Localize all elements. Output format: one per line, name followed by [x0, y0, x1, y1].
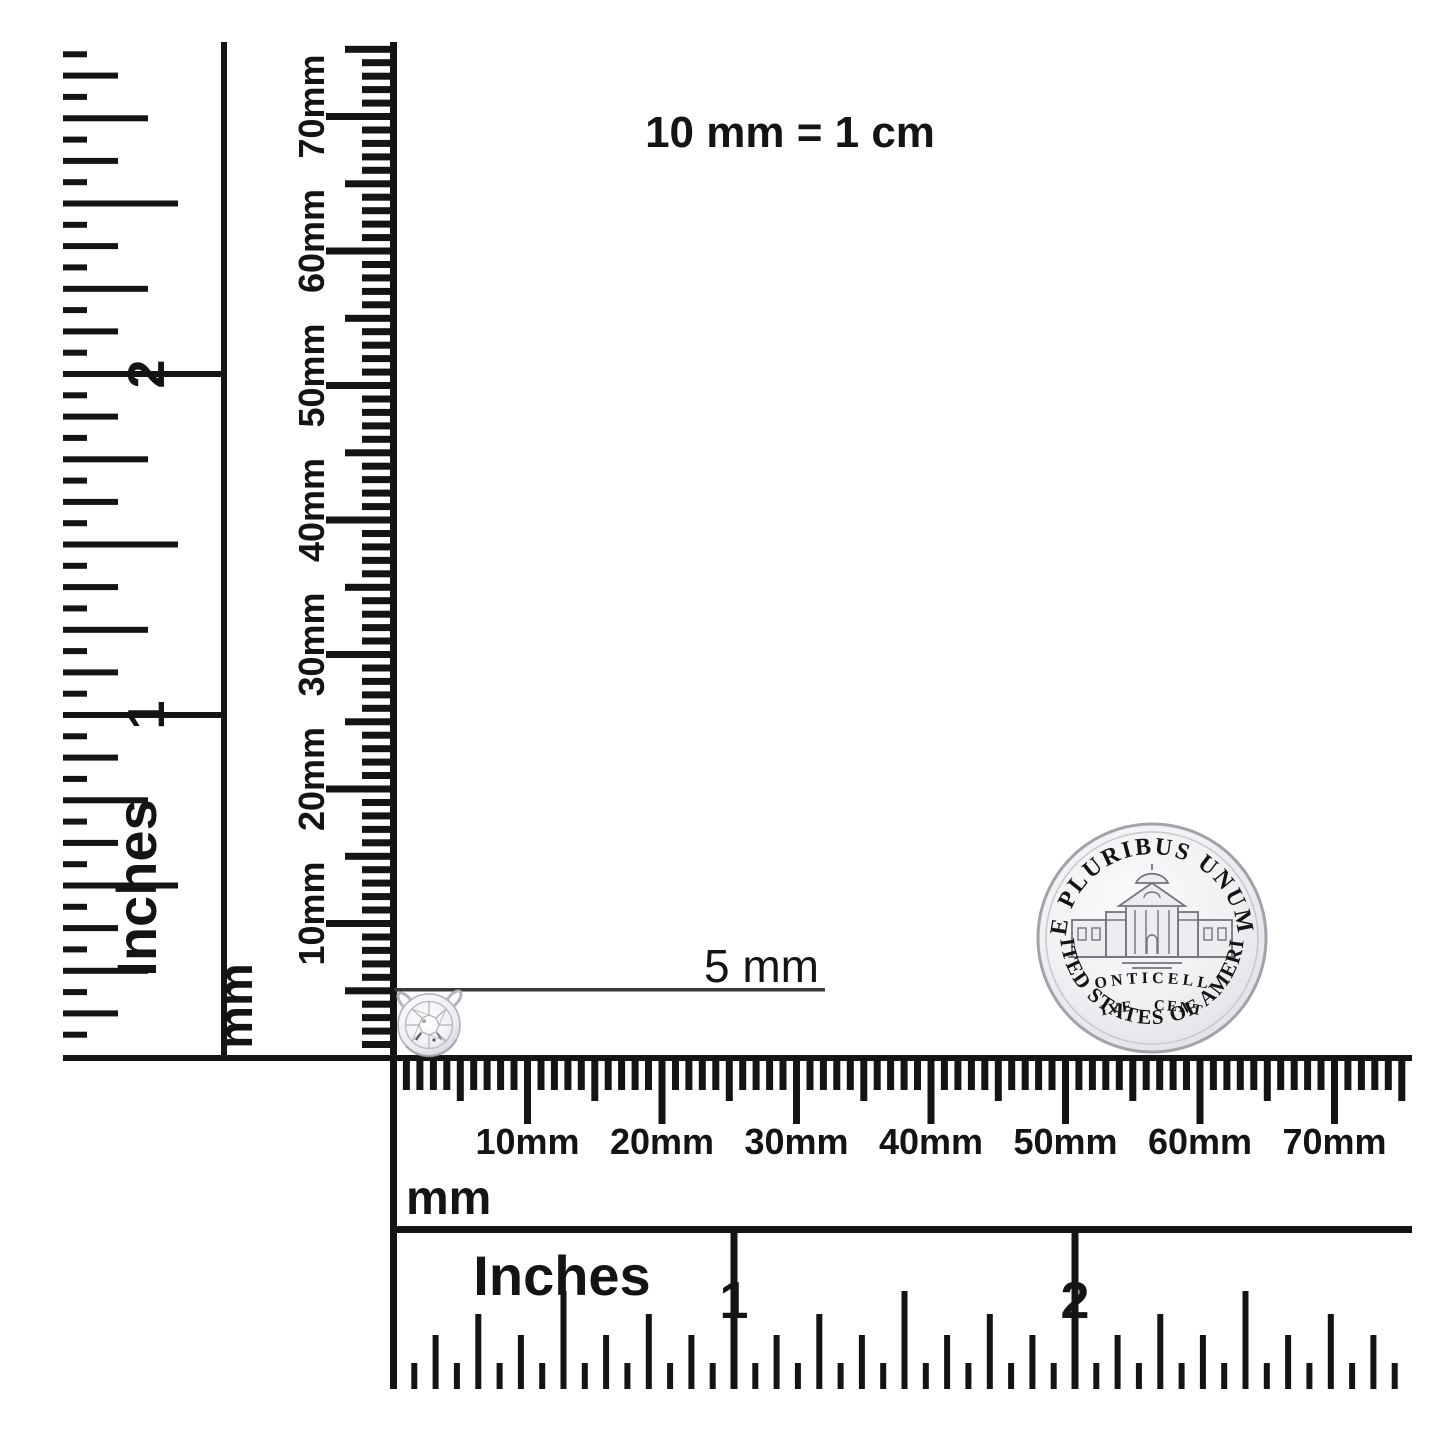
tick	[362, 732, 392, 739]
tick	[1008, 1056, 1015, 1090]
mm-ruler-horizontal-unit-label: mm	[406, 1172, 491, 1225]
tick	[433, 1335, 439, 1389]
tick	[887, 1056, 894, 1090]
tick	[816, 1314, 822, 1389]
tick	[1183, 1056, 1190, 1090]
tick	[582, 1363, 588, 1389]
tick	[538, 1056, 545, 1090]
tick	[63, 542, 178, 548]
building-right-link	[1178, 912, 1198, 957]
tick	[1062, 1056, 1069, 1124]
tick	[362, 100, 392, 107]
tick	[914, 1056, 921, 1090]
tick	[923, 1363, 929, 1389]
tick	[63, 1032, 87, 1038]
tick	[1089, 1056, 1096, 1090]
tick	[63, 414, 118, 420]
tick	[362, 369, 392, 376]
tick	[712, 1056, 719, 1090]
mm-number: 60mm	[291, 189, 332, 293]
tick	[63, 733, 87, 739]
tick	[1008, 1363, 1014, 1389]
tick	[1291, 1056, 1298, 1090]
horizontal-baseline	[63, 1055, 1412, 1061]
tick	[954, 1056, 961, 1090]
tick	[618, 1056, 625, 1090]
tick	[63, 73, 118, 79]
mm-inch-separator-line	[390, 1226, 1412, 1233]
tick	[710, 1363, 716, 1389]
tick	[470, 1056, 477, 1090]
tick	[1143, 1056, 1150, 1090]
tick	[475, 1314, 481, 1389]
tick	[63, 776, 87, 782]
tick	[362, 772, 392, 779]
inch-ruler-vertical-unit-label: Inches	[105, 799, 168, 976]
tick	[326, 786, 392, 793]
tick	[624, 1363, 630, 1389]
tick	[362, 503, 392, 510]
tick	[362, 194, 392, 201]
tick	[645, 1056, 652, 1090]
mm-ruler-vertical: 10mm20mm30mm40mm50mm60mm70mm mm	[210, 42, 397, 1061]
tick	[524, 1056, 531, 1124]
tick	[987, 1314, 993, 1389]
size-guide-figure: 12 Inches 10mm20mm30mm40mm50mm60mm70mm m…	[0, 0, 1445, 1445]
tick	[1306, 1363, 1312, 1389]
tick	[63, 584, 118, 590]
tick	[591, 1056, 598, 1101]
tick	[981, 1056, 988, 1090]
tick	[362, 86, 392, 93]
mm-number: 60mm	[1148, 1121, 1252, 1162]
tick	[838, 1363, 844, 1389]
tick	[539, 1363, 545, 1389]
tick	[63, 563, 87, 569]
tick	[603, 1335, 609, 1389]
tick	[362, 73, 392, 80]
tick	[672, 1056, 679, 1090]
tick	[766, 1056, 773, 1090]
tick	[753, 1056, 760, 1090]
mm-number: 50mm	[291, 323, 332, 427]
tick	[63, 350, 87, 356]
tick	[345, 180, 392, 187]
tick	[1264, 1363, 1270, 1389]
tick	[63, 989, 87, 995]
tick	[63, 115, 148, 121]
us-nickel-reverse-icon: E PLURIBUS UNUM UNITED STATES OF AMERICA…	[0, 0, 1266, 1052]
tick	[362, 1041, 392, 1048]
conversion-note: 10 mm = 1 cm	[645, 108, 935, 157]
tick	[1029, 1335, 1035, 1389]
tick	[1157, 1314, 1163, 1389]
tick	[362, 476, 392, 483]
tick	[362, 463, 392, 470]
tick	[1331, 1056, 1338, 1124]
tick	[659, 1056, 666, 1124]
tick	[1370, 1335, 1376, 1389]
tick	[362, 530, 392, 537]
tick	[1358, 1056, 1365, 1090]
tick	[63, 264, 87, 270]
tick	[362, 1028, 392, 1035]
size-indicator-label: 5 mm	[704, 940, 819, 992]
mm-ruler-horizontal-numbers: 10mm20mm30mm40mm50mm60mm70mm	[475, 1121, 1386, 1162]
tick	[726, 1056, 733, 1101]
tick	[1049, 1056, 1056, 1090]
mm-number: 10mm	[475, 1121, 579, 1162]
tick	[362, 826, 392, 833]
tick	[345, 315, 392, 322]
tick	[63, 222, 87, 228]
tick	[362, 893, 392, 900]
tick	[63, 179, 87, 185]
tick	[362, 1001, 392, 1008]
tick	[928, 1056, 935, 1124]
tick	[859, 1335, 865, 1389]
coin-denomination: FIVE CENTS	[0, 0, 1205, 1020]
tick	[63, 1010, 118, 1016]
tick	[807, 1056, 814, 1090]
tick	[362, 665, 392, 672]
tick	[362, 127, 392, 134]
tick	[63, 861, 87, 867]
tick	[944, 1335, 950, 1389]
tick	[362, 880, 392, 887]
tick	[362, 261, 392, 268]
round-diamond-bezel-pendant-icon	[395, 988, 464, 1056]
tick	[1129, 1056, 1136, 1101]
tick	[362, 678, 392, 685]
tick	[362, 436, 392, 443]
tick	[362, 543, 392, 550]
tick	[995, 1056, 1002, 1101]
tick	[63, 158, 118, 164]
tick	[1051, 1363, 1057, 1389]
tick	[63, 392, 87, 398]
tick	[63, 201, 178, 207]
tick	[63, 94, 87, 100]
tick	[564, 1056, 571, 1090]
tick	[902, 1291, 908, 1389]
mm-number: 10mm	[291, 861, 332, 965]
tick	[345, 987, 392, 994]
tick	[362, 638, 392, 645]
tick	[1197, 1056, 1204, 1124]
tick	[1156, 1056, 1163, 1090]
tick	[518, 1335, 524, 1389]
inch-ruler-horizontal-unit-label: Inches	[473, 1244, 650, 1307]
tick	[63, 819, 87, 825]
tick	[362, 355, 392, 362]
tick	[362, 705, 392, 712]
tick	[780, 1056, 787, 1090]
tick	[326, 651, 392, 658]
tick	[1371, 1056, 1378, 1090]
tick	[63, 669, 118, 675]
tick	[362, 960, 392, 967]
tick	[63, 286, 148, 292]
tick	[362, 597, 392, 604]
tick	[63, 478, 87, 484]
tick	[63, 946, 87, 952]
tick	[326, 920, 392, 927]
mm-ruler-vertical-ticks	[326, 46, 392, 1048]
mm-number: 30mm	[291, 592, 332, 696]
tick	[774, 1335, 780, 1389]
inch-number: 2	[118, 360, 176, 389]
tick	[362, 934, 392, 941]
tick	[326, 517, 392, 524]
tick	[820, 1056, 827, 1090]
tick	[362, 947, 392, 954]
tick	[860, 1056, 867, 1101]
tick	[362, 839, 392, 846]
mm-number: 20mm	[291, 727, 332, 831]
tick	[362, 1014, 392, 1021]
tick	[430, 1056, 437, 1090]
tick	[1349, 1363, 1355, 1389]
tick	[965, 1363, 971, 1389]
tick	[968, 1056, 975, 1090]
tick	[362, 745, 392, 752]
inch-ruler-horizontal: 12 Inches	[390, 1058, 1398, 1389]
mm-number: 50mm	[1013, 1121, 1117, 1162]
tick	[362, 167, 392, 174]
tick	[739, 1056, 746, 1090]
tick	[1318, 1056, 1325, 1090]
tick	[362, 288, 392, 295]
tick	[63, 904, 87, 910]
tick	[1385, 1056, 1392, 1090]
tick	[362, 624, 392, 631]
tick	[362, 274, 392, 281]
tick	[63, 328, 118, 334]
tick	[345, 718, 392, 725]
tick	[901, 1056, 908, 1090]
tick	[1115, 1335, 1121, 1389]
tick	[63, 456, 148, 462]
tick	[345, 853, 392, 860]
mm-number: 20mm	[610, 1121, 714, 1162]
tick	[362, 140, 392, 147]
tick	[1277, 1056, 1284, 1090]
tick	[551, 1056, 558, 1090]
building-center-block	[1126, 904, 1178, 957]
tick	[63, 435, 87, 441]
tick	[326, 113, 392, 120]
tick	[362, 490, 392, 497]
tick	[63, 520, 87, 526]
tick	[362, 422, 392, 429]
tick	[63, 307, 87, 313]
tick	[362, 866, 392, 873]
tick	[362, 234, 392, 241]
tick	[362, 396, 392, 403]
tick	[362, 301, 392, 308]
tick	[362, 557, 392, 564]
tick	[362, 207, 392, 214]
tick	[63, 137, 87, 143]
tick	[685, 1056, 692, 1090]
tick	[362, 759, 392, 766]
tick	[1200, 1335, 1206, 1389]
tick	[63, 499, 118, 505]
tick	[605, 1056, 612, 1090]
tick	[688, 1335, 694, 1389]
tick	[362, 59, 392, 66]
tick	[1328, 1314, 1334, 1389]
measurement-diagram: 12 Inches 10mm20mm30mm40mm50mm60mm70mm m…	[0, 0, 1445, 1445]
tick	[1264, 1056, 1271, 1101]
bottom-ruler-left-edge	[390, 1058, 397, 1389]
inch-number: 1	[720, 1272, 749, 1330]
tick	[63, 51, 87, 57]
tick	[1344, 1056, 1351, 1090]
tick	[362, 570, 392, 577]
tick	[795, 1363, 801, 1389]
tick	[345, 584, 392, 591]
tick	[362, 328, 392, 335]
tick	[326, 382, 392, 389]
tick	[793, 1056, 800, 1124]
tick	[497, 1363, 503, 1389]
mm-number: 70mm	[291, 54, 332, 158]
tick	[362, 221, 392, 228]
tick	[362, 691, 392, 698]
tick	[362, 907, 392, 914]
tick	[411, 1363, 417, 1389]
tick	[1223, 1056, 1230, 1090]
tick	[63, 691, 87, 697]
tick	[362, 974, 392, 981]
tick	[578, 1056, 585, 1090]
tick	[362, 409, 392, 416]
tick	[63, 243, 118, 249]
tick	[416, 1056, 423, 1090]
inch-number: 2	[1061, 1272, 1090, 1330]
tick	[457, 1056, 464, 1101]
tick	[699, 1056, 706, 1090]
mm-number: 40mm	[879, 1121, 983, 1162]
tick	[454, 1363, 460, 1389]
tick	[1075, 1056, 1082, 1090]
inch-number: 1	[118, 701, 176, 730]
tick	[667, 1363, 673, 1389]
mm-ruler-horizontal-ticks	[403, 1056, 1405, 1124]
tick	[511, 1056, 518, 1090]
tick	[1136, 1363, 1142, 1389]
tick	[1285, 1335, 1291, 1389]
tick	[63, 755, 118, 761]
building-left-link	[1106, 912, 1126, 957]
coin-building-label: MONTICELLO	[0, 0, 1214, 993]
tick	[1237, 1056, 1244, 1090]
tick	[362, 611, 392, 618]
tick	[362, 799, 392, 806]
tick	[362, 812, 392, 819]
tick	[63, 648, 87, 654]
tick	[497, 1056, 504, 1090]
tick	[63, 605, 87, 611]
tick	[1093, 1363, 1099, 1389]
mm-number: 40mm	[291, 458, 332, 562]
tick	[63, 627, 148, 633]
mm-ruler-vertical-numbers: 10mm20mm30mm40mm50mm60mm70mm	[291, 54, 332, 965]
mm-ruler-vertical-unit-label: mm	[210, 963, 263, 1048]
tick	[443, 1056, 450, 1090]
tick	[1250, 1056, 1257, 1090]
tick	[362, 153, 392, 160]
tick	[847, 1056, 854, 1090]
tick	[1221, 1363, 1227, 1389]
tick	[833, 1056, 840, 1090]
tick	[1243, 1291, 1249, 1389]
tick	[1116, 1056, 1123, 1090]
inch-ruler-vertical: 12 Inches	[63, 42, 227, 1061]
tick	[874, 1056, 881, 1090]
tick	[484, 1056, 491, 1090]
tick	[403, 1056, 410, 1090]
tick	[345, 46, 392, 53]
tick	[1392, 1363, 1398, 1389]
tick	[632, 1056, 639, 1090]
mm-number: 30mm	[744, 1121, 848, 1162]
tick	[1102, 1056, 1109, 1090]
size-indicator: 5 mm	[394, 940, 825, 992]
tick	[1170, 1056, 1177, 1090]
tick	[1022, 1056, 1029, 1090]
mm-ruler-horizontal: 10mm20mm30mm40mm50mm60mm70mm mm	[390, 1056, 1412, 1233]
mm-number: 70mm	[1282, 1121, 1386, 1162]
tick	[941, 1056, 948, 1090]
tick	[1179, 1363, 1185, 1389]
tick	[752, 1363, 758, 1389]
tick	[362, 342, 392, 349]
tick	[646, 1314, 652, 1389]
tick	[1035, 1056, 1042, 1090]
tick	[1210, 1056, 1217, 1090]
tick	[880, 1363, 886, 1389]
tick	[345, 449, 392, 456]
tick	[1304, 1056, 1311, 1090]
inch-ruler-vertical-edge	[221, 42, 227, 1061]
tick	[326, 248, 392, 255]
tick	[1398, 1056, 1405, 1101]
